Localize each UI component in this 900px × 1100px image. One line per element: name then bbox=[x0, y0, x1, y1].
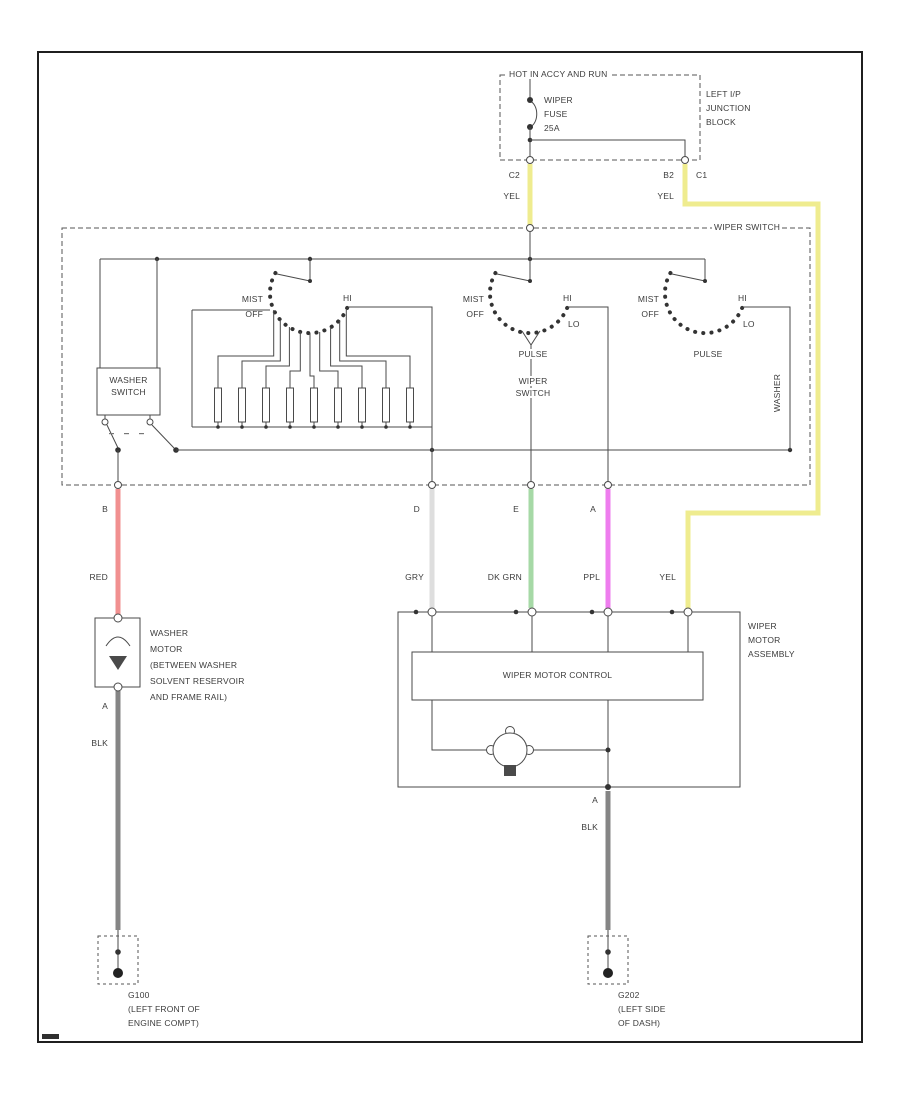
middle-mist-label: MIST bbox=[448, 294, 484, 304]
ground-g202-loc-1: (LEFT SIDE bbox=[618, 1004, 666, 1014]
ground-g202-name: G202 bbox=[618, 990, 640, 1000]
purple-trace bbox=[568, 307, 608, 485]
pin-letter-gry: D bbox=[404, 504, 420, 514]
pin-label-c1: C1 bbox=[696, 170, 707, 180]
corner-mark bbox=[42, 1034, 59, 1039]
washer-motor bbox=[95, 614, 140, 691]
ground-g100-name: G100 bbox=[128, 990, 150, 1000]
resistor-ladder bbox=[215, 388, 414, 429]
middle-caption-2: SWITCH bbox=[505, 388, 561, 398]
motor-symbol bbox=[487, 727, 534, 777]
junction-block-label-1: LEFT I/P bbox=[706, 89, 741, 99]
fuse-word: FUSE bbox=[544, 109, 567, 119]
middle-pulse-label: PULSE bbox=[505, 349, 561, 359]
colored-wires bbox=[118, 164, 818, 930]
fuse-block bbox=[500, 75, 700, 164]
pin-letter-dkgrn: E bbox=[503, 504, 519, 514]
delay-switch bbox=[192, 273, 432, 485]
wire-color-label-dkgrn: DK GRN bbox=[464, 572, 522, 582]
right-off-label: OFF bbox=[629, 309, 659, 319]
middle-lo-label: LO bbox=[568, 319, 580, 329]
pin-letter-washer-out: A bbox=[92, 701, 108, 711]
wire-color-label-yel-motor: YEL bbox=[634, 572, 676, 582]
middle-off-label: OFF bbox=[454, 309, 484, 319]
wire-color-label-ppl: PPL bbox=[558, 572, 600, 582]
fuse-name: WIPER bbox=[544, 95, 573, 105]
wire-color-label-blk-right: BLK bbox=[566, 822, 598, 832]
delay-hi-label: HI bbox=[343, 293, 352, 303]
delay-mist-label: MIST bbox=[227, 294, 263, 304]
washer-motor-label-5: AND FRAME RAIL) bbox=[150, 692, 227, 702]
fuse-amps: 25A bbox=[544, 123, 560, 133]
right-hi-label: HI bbox=[738, 293, 747, 303]
right-lo-label: LO bbox=[743, 319, 755, 329]
wiper-motor-control-label: WIPER MOTOR CONTROL bbox=[412, 670, 703, 680]
junction-block-label-3: BLOCK bbox=[706, 117, 736, 127]
washer-motor-label-2: MOTOR bbox=[150, 644, 182, 654]
wiper-motor-assembly bbox=[398, 608, 740, 790]
ground-g100-loc-2: ENGINE COMPT) bbox=[128, 1018, 199, 1028]
diagram-border bbox=[38, 52, 862, 1042]
wiper-motor-assembly-label-1: WIPER bbox=[748, 621, 777, 631]
wiring-diagram-page: HOT IN ACCY AND RUN WIPER FUSE 25A LEFT … bbox=[0, 0, 900, 1100]
right-mist-label: MIST bbox=[623, 294, 659, 304]
wire-color-label-blk-left: BLK bbox=[76, 738, 108, 748]
right-pulse-switch bbox=[665, 273, 790, 450]
washer-switch-label-1: WASHER bbox=[97, 375, 160, 385]
pin-letter-ppl: A bbox=[580, 504, 596, 514]
hot-label: HOT IN ACCY AND RUN bbox=[507, 69, 609, 79]
wire-color-label-red: RED bbox=[76, 572, 108, 582]
wire-color-label-yel-left: YEL bbox=[494, 191, 520, 201]
washer-switch-label-2: SWITCH bbox=[97, 387, 160, 397]
wiper-motor-assembly-label-2: MOTOR bbox=[748, 635, 780, 645]
pin-letter-washer-in: B bbox=[92, 504, 108, 514]
right-rotated-label: WASHER bbox=[772, 368, 782, 418]
delay-off-label: OFF bbox=[233, 309, 263, 319]
wiper-switch-box-label: WIPER SWITCH bbox=[712, 222, 782, 232]
middle-caption-1: WIPER bbox=[505, 376, 561, 386]
ground-g100 bbox=[98, 930, 138, 984]
pin-letter-motor-out: A bbox=[582, 795, 598, 805]
ground-g202 bbox=[588, 930, 628, 984]
washer-motor-label-1: WASHER bbox=[150, 628, 188, 638]
pin-label-c2: C2 bbox=[494, 170, 520, 180]
washer-switch bbox=[97, 259, 179, 485]
wire-color-label-gry: GRY bbox=[384, 572, 424, 582]
ground-g202-loc-2: OF DASH) bbox=[618, 1018, 660, 1028]
right-pulse-label: PULSE bbox=[680, 349, 736, 359]
wiper-motor-assembly-label-3: ASSEMBLY bbox=[748, 649, 795, 659]
ground-g100-loc-1: (LEFT FRONT OF bbox=[128, 1004, 200, 1014]
junction-block-label-2: JUNCTION bbox=[706, 103, 751, 113]
wiring-svg bbox=[0, 0, 900, 1100]
middle-hi-label: HI bbox=[563, 293, 572, 303]
washer-motor-label-3: (BETWEEN WASHER bbox=[150, 660, 237, 670]
wire-color-label-yel-right: YEL bbox=[648, 191, 674, 201]
pin-label-b2: B2 bbox=[648, 170, 674, 180]
washer-motor-label-4: SOLVENT RESERVOIR bbox=[150, 676, 245, 686]
